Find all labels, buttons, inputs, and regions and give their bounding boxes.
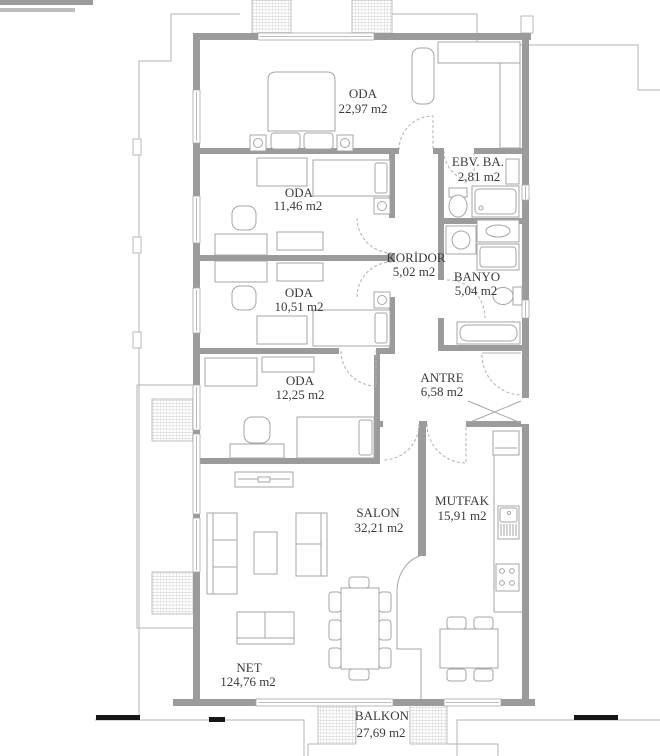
label-oda-2-area: 11,46 m2: [274, 198, 323, 213]
balcony-left: [137, 385, 196, 628]
pillow-left: [271, 133, 300, 149]
entrance-door-x-marker: [468, 401, 521, 423]
floor-plan-svg: ODA 22,97 m2 ODA 11,46 m2 ODA 10,51 m2 K…: [0, 0, 660, 756]
toilet-bowl: [449, 195, 467, 217]
door-arc-oda-2: [357, 218, 392, 253]
washing-machine: [446, 226, 476, 254]
label-balkon-name: BALKON: [355, 708, 410, 723]
black-segment-2: [209, 717, 225, 722]
window-top: [258, 33, 374, 40]
sink: [506, 159, 519, 184]
pillow: [375, 313, 387, 343]
window-bottom-mutfak: [444, 699, 501, 706]
kitchen-chair: [474, 669, 493, 681]
dining-chair: [379, 620, 391, 640]
wall-salon-mutfak: [418, 421, 426, 556]
window-balcony-door-left: [193, 434, 200, 514]
label-koridor-area: 5,02 m2: [393, 264, 436, 279]
double-bed: [268, 72, 335, 131]
window-left-4: [193, 385, 200, 430]
dining-chair: [379, 592, 391, 612]
label-salon-name: SALON: [356, 505, 400, 520]
toilet-tank: [513, 287, 522, 305]
cabinet: [412, 48, 434, 104]
axis-tick-3: [133, 332, 141, 348]
nightstand-right: [337, 135, 353, 151]
desk: [215, 261, 267, 282]
outline-tick-top-right: [521, 16, 533, 33]
wardrobe: [205, 358, 257, 386]
label-oda-3-name: ODA: [285, 285, 314, 300]
wardrobe-side: [500, 63, 520, 148]
chair: [232, 286, 256, 310]
black-segment-1: [96, 715, 140, 720]
window-right-banyo: [522, 300, 529, 318]
axis-tick-1: [133, 139, 141, 155]
coffee-table: [254, 532, 277, 574]
label-koridor-name: KORİDOR: [386, 250, 446, 265]
outline-bottom-left: [95, 720, 304, 756]
kitchen-chair: [447, 617, 466, 629]
label-oda-ebeveyn-area: 22,97 m2: [338, 101, 387, 116]
chair: [244, 417, 270, 443]
tv: [258, 477, 270, 482]
label-banyo-name: BANYO: [454, 269, 500, 284]
shelf: [262, 357, 314, 372]
desk: [215, 234, 267, 255]
window-right-ebv: [522, 185, 529, 200]
opening-oda-4: [339, 347, 376, 355]
stove: [496, 564, 519, 591]
entrance-door-arc: [482, 355, 522, 395]
label-mutfak-area: 15,91 m2: [437, 508, 486, 523]
fridge: [493, 431, 519, 455]
wall-v3: [374, 348, 380, 464]
dresser: [277, 263, 323, 281]
vanity-counter: [477, 220, 519, 242]
wardrobe: [257, 158, 307, 186]
furniture-mutfak: [440, 431, 522, 681]
label-oda-3-area: 10,51 m2: [274, 299, 323, 314]
opening-oda-2: [388, 218, 396, 253]
shower: [477, 244, 519, 270]
pillow-right: [304, 133, 333, 149]
nightstand-left: [250, 135, 266, 151]
shower: [472, 186, 519, 217]
dining-chair: [329, 648, 341, 668]
balcony-bottom-hatch-right: [410, 702, 447, 744]
window-left-1: [193, 90, 200, 143]
door-arc-mutfak: [427, 424, 466, 463]
label-banyo-area: 5,04 m2: [455, 283, 498, 298]
dining-chair: [349, 577, 369, 588]
balcony-top: [252, 0, 392, 35]
opening-oda-ebeveyn: [399, 147, 433, 155]
chair: [232, 206, 256, 230]
kitchen-table: [440, 629, 498, 668]
pillow: [375, 163, 387, 193]
opening-mutfak: [427, 420, 466, 428]
desk: [230, 444, 284, 458]
window-bottom-salon: [256, 699, 393, 706]
wall-h2: [196, 255, 392, 261]
label-balkon-area: 27,69 m2: [356, 725, 405, 740]
label-oda-4-name: ODA: [286, 373, 315, 388]
label-net-area: 124,76 m2: [220, 674, 276, 689]
kitchen-chair: [474, 617, 493, 629]
wall-h6: [196, 458, 380, 464]
dining-chair: [329, 620, 341, 640]
furniture-oda-ebeveyn: [250, 42, 520, 151]
dining-chair: [349, 669, 369, 680]
door-arc-salon: [383, 424, 419, 460]
sofa-left: [207, 513, 237, 594]
dining-chair: [379, 648, 391, 668]
neighbour-line-fragment: [0, 8, 75, 12]
label-mutfak-name: MUTFAK: [435, 493, 490, 508]
balcony-bottom-hatch-left: [318, 702, 356, 744]
label-oda-ebeveyn-name: ODA: [349, 86, 378, 101]
kitchen-chair: [447, 669, 466, 681]
label-salon-area: 32,21 m2: [354, 520, 403, 535]
balcony-left-hatch-top: [152, 399, 196, 441]
label-ebv-ba-name: EBV. BA.: [452, 154, 504, 169]
window-left-2: [193, 196, 200, 243]
wall-exterior-right: [522, 33, 529, 706]
balcony-bottom-rail: [308, 744, 498, 756]
door-arc-oda-ebeveyn: [399, 116, 433, 150]
balcony-left-hatch-bottom: [152, 572, 196, 614]
dining-table: [341, 588, 379, 669]
nightstand: [374, 292, 390, 308]
wall-h4b: [438, 345, 522, 351]
opening-salon: [383, 420, 419, 428]
floor-plan: ODA 22,97 m2 ODA 11,46 m2 ODA 10,51 m2 K…: [0, 0, 660, 756]
outline-bottom-right: [457, 720, 660, 756]
curved-partition: [397, 556, 421, 699]
label-oda-4-area: 12,25 m2: [275, 387, 324, 402]
door-arc-oda-4: [341, 351, 376, 386]
opening-entrance: [521, 398, 530, 424]
window-left-3: [193, 288, 200, 333]
balcony-top-hatch-left: [252, 0, 291, 35]
wardrobe: [257, 316, 307, 344]
label-net-name: NET: [236, 660, 261, 675]
dresser: [277, 232, 323, 250]
pillow: [359, 420, 372, 455]
opening-banyo: [437, 280, 445, 318]
label-antre-name: ANTRE: [420, 370, 463, 385]
balcony-top-hatch-right: [352, 0, 392, 35]
entrance-door: [468, 353, 522, 423]
label-ebv-ba-area: 2,81 m2: [458, 169, 501, 184]
axis-tick-2: [133, 237, 141, 253]
window-left-5: [193, 518, 200, 572]
label-antre-area: 6,58 m2: [421, 384, 464, 399]
wardrobe-top: [438, 42, 520, 63]
nightstand: [374, 198, 390, 214]
black-segment-3: [574, 715, 618, 720]
neighbour-wall-fragment: [0, 0, 93, 5]
dining-chair: [329, 592, 341, 612]
